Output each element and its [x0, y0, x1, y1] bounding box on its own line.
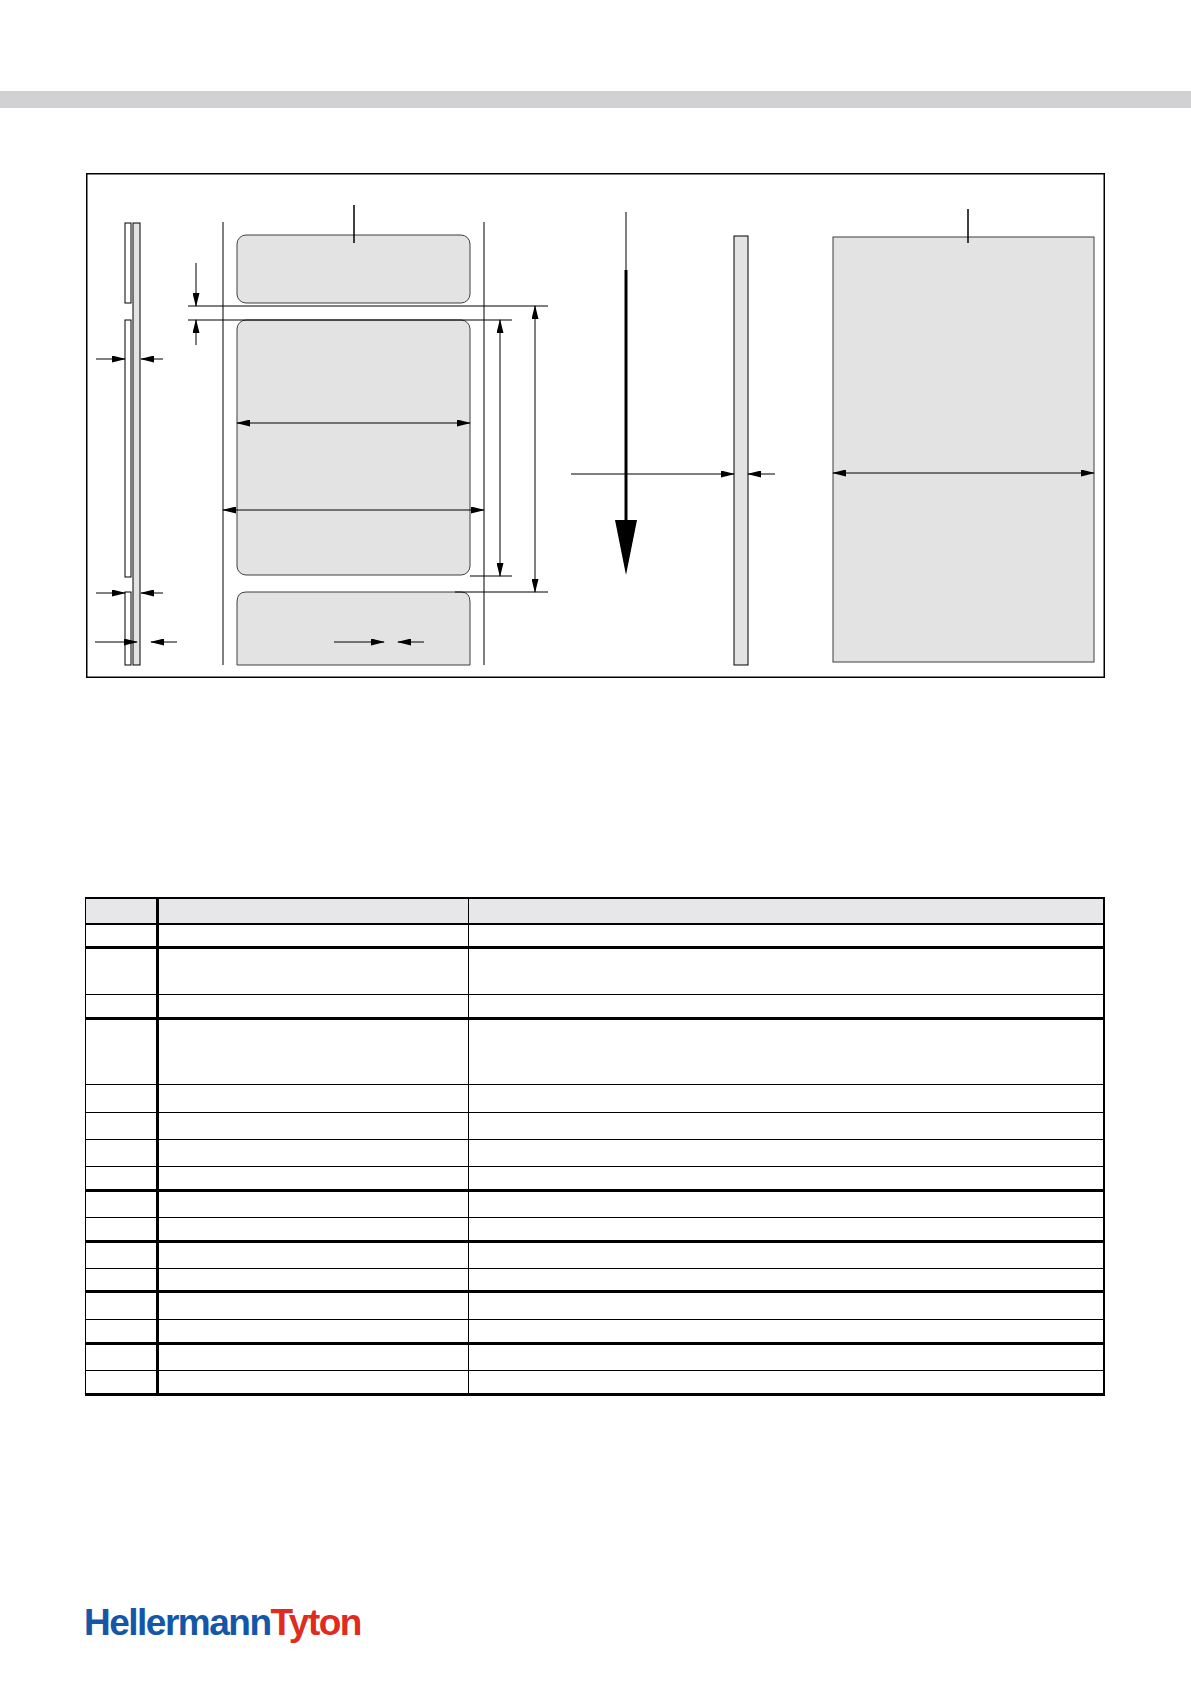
table-row: [86, 925, 1103, 949]
table-cell: [159, 1113, 469, 1139]
table-cell: [86, 1167, 159, 1189]
table-cell: [86, 925, 159, 946]
label-roll-front-view: [223, 205, 484, 665]
table-row: [86, 1113, 1103, 1140]
table-cell: [469, 1269, 1103, 1290]
dimension-table: [85, 897, 1105, 1396]
table-cell: [86, 1320, 159, 1342]
table-row: [86, 1020, 1103, 1085]
table-cell: [86, 1085, 159, 1112]
table-cell: [469, 1085, 1103, 1112]
table-cell: [469, 1113, 1103, 1139]
table-cell: [86, 1020, 159, 1084]
table-cell: [469, 1345, 1103, 1370]
table-cell: [469, 949, 1103, 994]
table-row: [86, 1167, 1103, 1192]
feed-direction-arrow: [615, 212, 637, 575]
table-cell: [469, 1243, 1103, 1268]
table-cell: [86, 1269, 159, 1290]
table-header-cell: [86, 899, 159, 923]
table-row: [86, 1269, 1103, 1293]
table-row: [86, 1243, 1103, 1269]
table-cell: [159, 1345, 469, 1370]
table-cell: [86, 1218, 159, 1240]
datasheet-page: { "top_band": { "color": "#d1d1d3" }, "d…: [0, 0, 1191, 1684]
table-cell: [86, 1140, 159, 1166]
table-header-row: [86, 899, 1103, 925]
table-cell: [86, 1371, 159, 1393]
table-cell: [159, 1371, 469, 1393]
label-length-dimension: [470, 320, 512, 576]
table-cell: [159, 1218, 469, 1240]
table-row: [86, 949, 1103, 995]
table-row: [86, 1140, 1103, 1167]
table-cell: [86, 1243, 159, 1268]
liner-side-view-strip: [734, 236, 748, 665]
table-row: [86, 1192, 1103, 1218]
table-cell: [469, 995, 1103, 1017]
label-panel-view: [833, 209, 1094, 662]
table-header-cell: [469, 899, 1103, 923]
table-cell: [159, 949, 469, 994]
table-row: [86, 1085, 1103, 1113]
table-cell: [86, 1293, 159, 1319]
table-cell: [86, 949, 159, 994]
top-gray-band: [0, 91, 1191, 108]
table-cell: [159, 1269, 469, 1290]
label-edge-view-strips: [125, 223, 140, 665]
table-row: [86, 1320, 1103, 1345]
table-cell: [469, 1218, 1103, 1240]
table-cell: [159, 1192, 469, 1217]
table-cell: [469, 1371, 1103, 1393]
table-cell: [159, 1293, 469, 1319]
table-cell: [469, 1293, 1103, 1319]
table-row: [86, 1218, 1103, 1243]
table-cell: [469, 1192, 1103, 1217]
logo-part-hellermann: Hellermann: [84, 1602, 271, 1643]
table-row: [86, 1345, 1103, 1371]
table-row: [86, 1371, 1103, 1396]
table-cell: [86, 1345, 159, 1370]
table-cell: [159, 1243, 469, 1268]
table-cell: [469, 1140, 1103, 1166]
table-cell: [159, 995, 469, 1017]
table-row: [86, 1293, 1103, 1320]
table-cell: [159, 1020, 469, 1084]
table-cell: [469, 1167, 1103, 1189]
table-cell: [86, 1192, 159, 1217]
table-cell: [159, 1167, 469, 1189]
table-cell: [86, 1113, 159, 1139]
hellermanntyton-logo: HellermannTyton: [84, 1602, 361, 1644]
table-cell: [159, 1085, 469, 1112]
table-cell: [86, 995, 159, 1017]
table-cell: [469, 1020, 1103, 1084]
table-header-cell: [159, 899, 469, 923]
table-cell: [159, 1140, 469, 1166]
table-row: [86, 995, 1103, 1020]
table-cell: [159, 1320, 469, 1342]
label-dimension-diagram: [86, 173, 1105, 678]
table-cell: [159, 925, 469, 946]
table-cell: [469, 1320, 1103, 1342]
logo-part-tyton: Tyton: [271, 1602, 361, 1643]
table-cell: [469, 925, 1103, 946]
